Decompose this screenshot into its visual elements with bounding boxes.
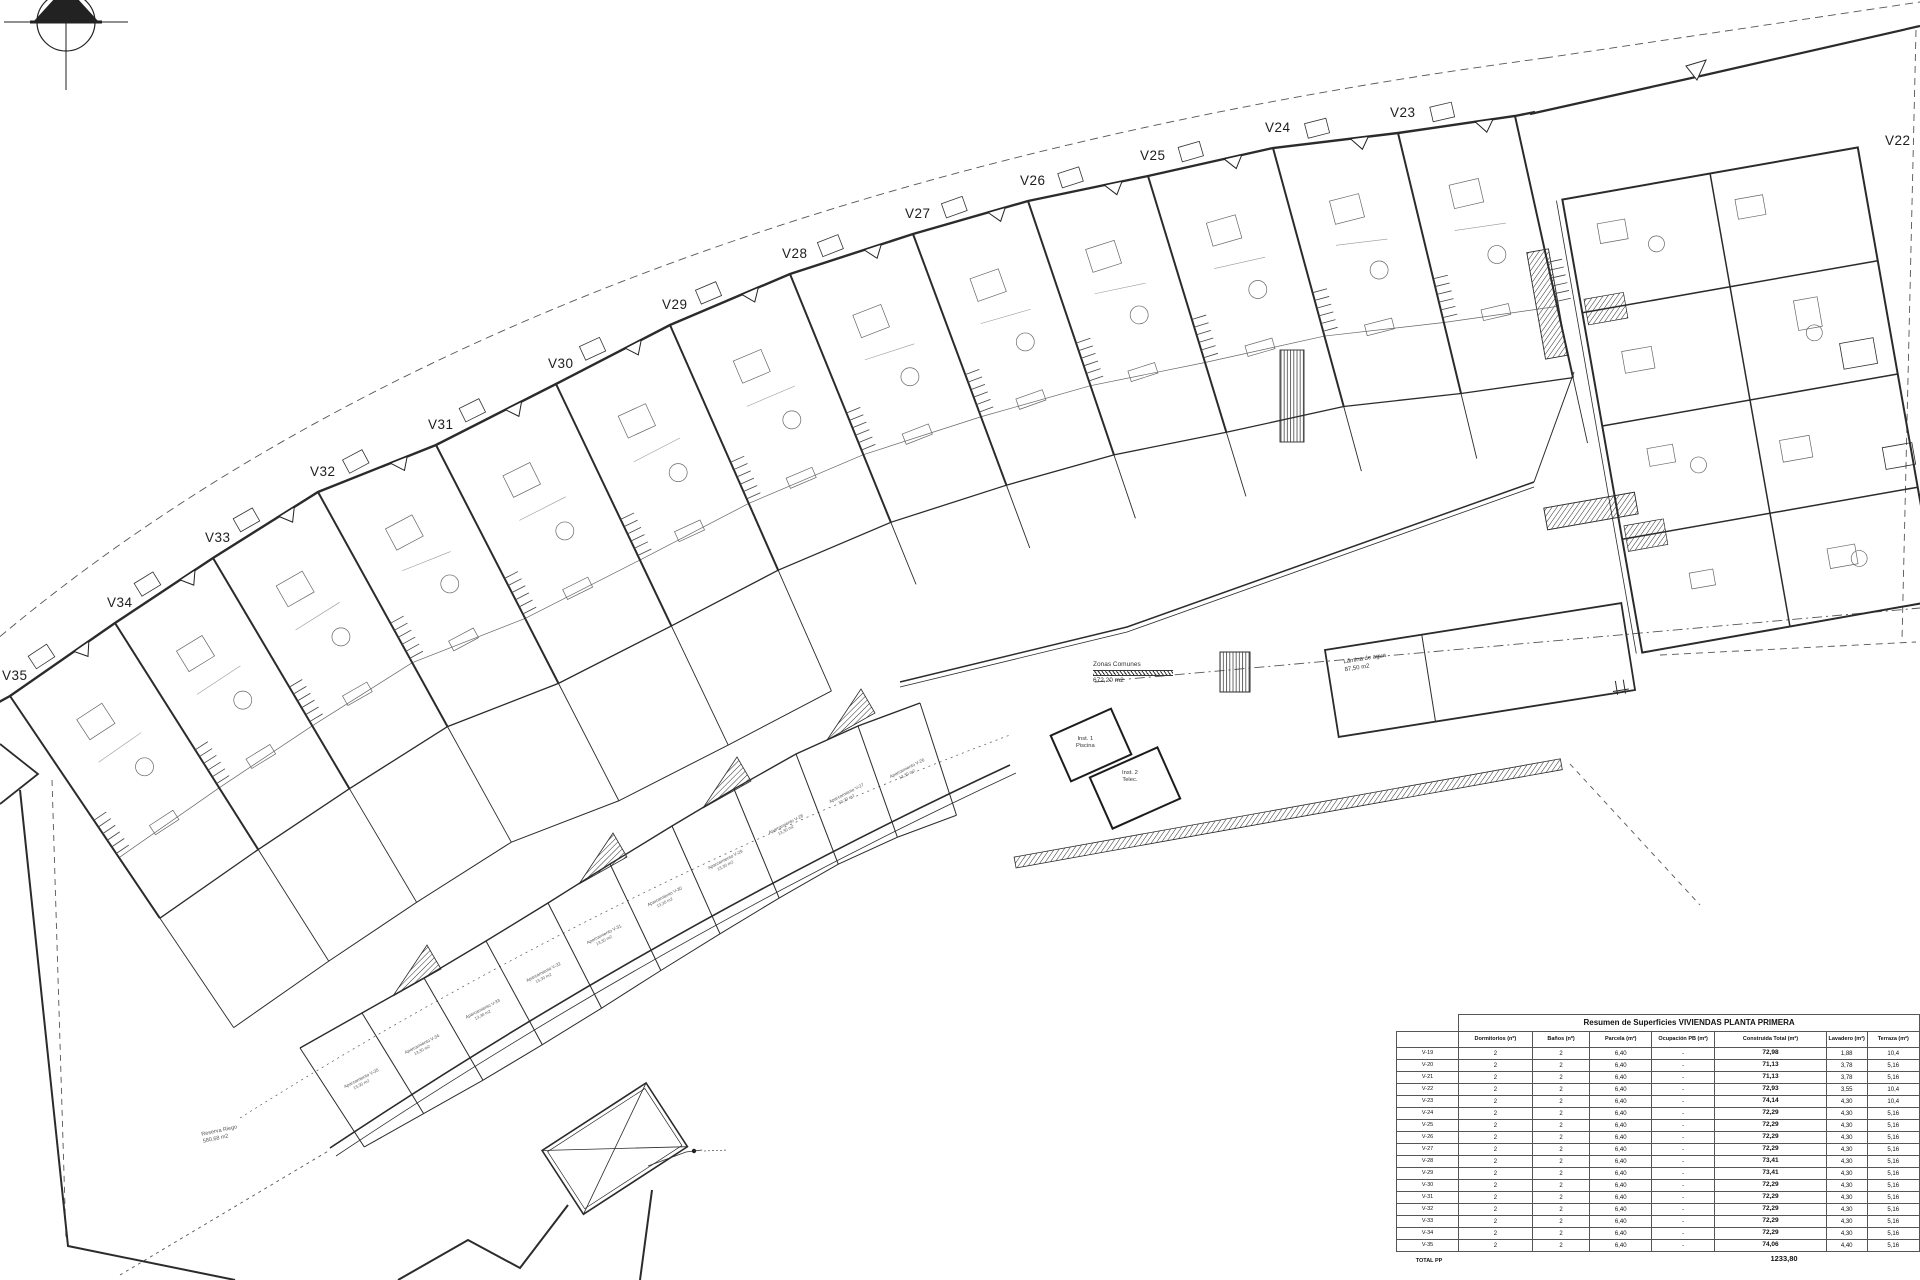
unit-label-v35: V35 — [2, 668, 28, 683]
stair-step — [624, 520, 638, 526]
column-header: Construida Total (m²) — [1715, 1032, 1827, 1048]
table-cell: 6,40 — [1590, 1168, 1652, 1180]
entry-marker-triangle — [279, 507, 294, 522]
entry-porch-box — [1430, 102, 1455, 122]
table-cell: V-19 — [1397, 1048, 1459, 1060]
table-cell: 2 — [1532, 1204, 1590, 1216]
party-wall — [436, 445, 559, 683]
unit-furniture — [1086, 240, 1158, 381]
stair-step — [1192, 315, 1206, 319]
table-cell: 4,30 — [1826, 1156, 1867, 1168]
table-row: V-32226,40-72,294,305,16 — [1397, 1204, 1920, 1216]
table-cell: V-34 — [1397, 1228, 1459, 1240]
table-cell: 2 — [1532, 1216, 1590, 1228]
party-wall — [213, 558, 349, 789]
parking-divider — [672, 826, 720, 934]
entry-porch-box — [134, 572, 161, 596]
table-cell: 2 — [1459, 1204, 1533, 1216]
areas-summary-table: Resumen de Superficies VIVIENDAS PLANTA … — [1396, 1014, 1920, 1252]
table-cell: 4,30 — [1826, 1180, 1867, 1192]
table-cell: 4,30 — [1826, 1192, 1867, 1204]
table-cell: 5,16 — [1867, 1228, 1919, 1240]
inst2-label: Inst. 2 — [1122, 770, 1138, 777]
table-cell: - — [1652, 1228, 1715, 1240]
table-cell: 4,30 — [1826, 1204, 1867, 1216]
unit-band — [0, 102, 1588, 1027]
table-cell: 4,30 — [1826, 1096, 1867, 1108]
table-cell: 2 — [1459, 1192, 1533, 1204]
table-cell: 2 — [1459, 1096, 1533, 1108]
stair-step — [98, 819, 110, 827]
party-wall — [115, 623, 258, 850]
stair-step — [1321, 320, 1335, 324]
unit-label-v27: V27 — [905, 206, 931, 221]
inst2-sublabel: Telec. — [1122, 777, 1138, 784]
entry-marker-triangle — [1350, 137, 1368, 150]
stair-step — [979, 407, 993, 412]
column-header: Dormitorios (nº) — [1459, 1032, 1533, 1048]
table-cell: 2 — [1459, 1108, 1533, 1120]
table-cell: 5,16 — [1867, 1168, 1919, 1180]
table-cell: 5,16 — [1867, 1204, 1919, 1216]
unit-label-v31: V31 — [428, 417, 454, 432]
table-cell: 2 — [1532, 1084, 1590, 1096]
table-title-row: Resumen de Superficies VIVIENDAS PLANTA … — [1397, 1015, 1920, 1032]
table-cell: 2 — [1532, 1180, 1590, 1192]
party-wall — [556, 384, 671, 626]
table-cell: 74,06 — [1715, 1240, 1827, 1252]
unit-label-v26: V26 — [1020, 173, 1046, 188]
stair-step — [298, 693, 311, 701]
communal-walk — [900, 372, 1574, 687]
table-cell: 72,29 — [1715, 1120, 1827, 1132]
entry-porch-box — [941, 196, 967, 217]
table-cell: 6,40 — [1590, 1060, 1652, 1072]
table-cell: 2 — [1459, 1120, 1533, 1132]
table-cell: 2 — [1459, 1060, 1533, 1072]
stair-step — [103, 825, 115, 833]
stair-step — [398, 630, 411, 637]
table-cell: 6,40 — [1590, 1108, 1652, 1120]
table-cell: - — [1652, 1204, 1715, 1216]
table-cell: 6,40 — [1590, 1120, 1652, 1132]
front-wall — [0, 112, 1535, 706]
inst2-annotation: Inst. 2 Telec. — [1122, 770, 1138, 784]
table-cell: V-30 — [1397, 1180, 1459, 1192]
table-cell: 2 — [1532, 1060, 1590, 1072]
stair-step — [621, 513, 635, 519]
table-cell: - — [1652, 1048, 1715, 1060]
parking-divider — [486, 941, 542, 1045]
stair-step — [1435, 283, 1450, 287]
table-cell: 6,40 — [1590, 1096, 1652, 1108]
unit-label-v30: V30 — [548, 356, 574, 371]
entry-porch-box — [579, 337, 605, 360]
stair-step — [731, 456, 745, 462]
unit-furniture — [276, 571, 372, 705]
stair-step — [402, 637, 415, 644]
table-cell: 2 — [1532, 1192, 1590, 1204]
stair-step — [390, 616, 403, 623]
stair-step — [858, 437, 872, 443]
table-cell: V-24 — [1397, 1108, 1459, 1120]
table-cell: 4,40 — [1826, 1240, 1867, 1252]
stair-step — [740, 478, 754, 484]
table-cell: 1,88 — [1826, 1048, 1867, 1060]
table-cell: 2 — [1532, 1132, 1590, 1144]
table-cell: V-20 — [1397, 1060, 1459, 1072]
table-cell: 10,4 — [1867, 1084, 1919, 1096]
stair-step — [634, 542, 648, 548]
party-wall — [1398, 133, 1461, 393]
table-cell: 74,14 — [1715, 1096, 1827, 1108]
table-cell: V-28 — [1397, 1156, 1459, 1168]
table-cell: 72,29 — [1715, 1144, 1827, 1156]
installation-rooms — [1051, 709, 1181, 829]
entry-marker-triangle — [742, 287, 759, 302]
inst1-label: Inst. 1 — [1076, 736, 1095, 743]
party-wall — [913, 234, 1006, 485]
table-cell: 2 — [1459, 1084, 1533, 1096]
unit-label-v22: V22 — [1885, 133, 1911, 148]
table-cell: 2 — [1459, 1132, 1533, 1144]
column-header — [1397, 1032, 1459, 1048]
table-cell: 5,16 — [1867, 1156, 1919, 1168]
table-title: Resumen de Superficies VIVIENDAS PLANTA … — [1459, 1015, 1920, 1032]
transformer-box — [542, 1083, 728, 1214]
stair-step — [1554, 290, 1569, 293]
table-cell: 5,16 — [1867, 1180, 1919, 1192]
stair-step — [107, 832, 119, 840]
entry-porch-box — [695, 282, 721, 304]
unit-label-v29: V29 — [662, 297, 688, 312]
stair-step — [195, 742, 208, 750]
table-cell: V-35 — [1397, 1240, 1459, 1252]
stair-step — [1086, 369, 1100, 374]
table-row: V-29226,40-73,414,305,16 — [1397, 1168, 1920, 1180]
table-cell: 2 — [1459, 1240, 1533, 1252]
zonas-comunes-label: Zonas Comunes — [1093, 661, 1173, 669]
stair-step — [1081, 353, 1095, 358]
stair-step — [94, 812, 106, 820]
table-row: V-19226,40-72,981,8810,4 — [1397, 1048, 1920, 1060]
stair-step — [976, 399, 990, 404]
parking-divider — [610, 864, 661, 971]
stair-step — [512, 586, 525, 593]
stair-step — [861, 444, 875, 450]
stair-step — [1313, 289, 1327, 293]
parking-divider — [796, 754, 838, 864]
table-cell: 5,16 — [1867, 1132, 1919, 1144]
parking-divider — [734, 789, 779, 898]
stair-step — [1437, 291, 1452, 295]
table-cell: 4,30 — [1826, 1120, 1867, 1132]
table-cell: - — [1652, 1240, 1715, 1252]
stair-step — [112, 838, 124, 846]
total-row-label: TOTAL PP — [1396, 1258, 1462, 1264]
table-row: V-26226,40-72,294,305,16 — [1397, 1132, 1920, 1144]
stair-step — [306, 707, 319, 715]
stair-step — [406, 644, 419, 651]
table-cell: 2 — [1459, 1216, 1533, 1228]
table-cell: 72,29 — [1715, 1132, 1827, 1144]
table-cell: - — [1652, 1216, 1715, 1228]
table-cell: 2 — [1459, 1048, 1533, 1060]
table-cell: 6,40 — [1590, 1180, 1652, 1192]
table-cell: 5,16 — [1867, 1120, 1919, 1132]
table-cell: - — [1652, 1060, 1715, 1072]
stair-step — [1197, 330, 1211, 334]
unit-furniture — [77, 703, 179, 835]
stair-step — [302, 700, 315, 708]
table-cell: V-27 — [1397, 1144, 1459, 1156]
right-building-block — [1556, 147, 1920, 653]
unit-furniture — [1329, 194, 1394, 336]
table-cell: 73,41 — [1715, 1168, 1827, 1180]
stair-step — [1089, 376, 1103, 381]
table-cell: 2 — [1459, 1180, 1533, 1192]
table-cell: 6,40 — [1590, 1084, 1652, 1096]
stair-step — [1204, 353, 1218, 357]
party-wall — [10, 696, 160, 918]
floor-plan-sheet: Aparcamiento V-3513,30 m2Aparcamiento V-… — [0, 0, 1920, 1280]
table-cell: 72,29 — [1715, 1108, 1827, 1120]
parking-divider — [548, 903, 602, 1008]
parking-divider — [858, 726, 897, 837]
entry-porch-box — [1305, 118, 1330, 138]
unit-furniture — [618, 404, 704, 542]
stair-step — [852, 422, 866, 428]
table-cell: - — [1652, 1084, 1715, 1096]
unit-label-v34: V34 — [107, 595, 133, 610]
table-cell: 6,40 — [1590, 1228, 1652, 1240]
unit-label-v33: V33 — [205, 530, 231, 545]
stair-step — [1317, 304, 1331, 308]
entry-marker-triangle — [1475, 119, 1493, 132]
parking-divider — [362, 1013, 424, 1114]
table-cell: 3,78 — [1826, 1072, 1867, 1084]
table-row: V-28226,40-73,414,305,16 — [1397, 1156, 1920, 1168]
column-header: Terraza (m²) — [1867, 1032, 1919, 1048]
stair-step — [394, 623, 407, 630]
entry-porch-box — [343, 450, 369, 474]
stair-step — [1201, 346, 1215, 350]
unit-furniture — [853, 304, 932, 444]
entry-porch-box — [1178, 141, 1203, 162]
stair-step — [968, 377, 982, 382]
column-header: Baños (nº) — [1532, 1032, 1590, 1048]
stair-step — [747, 493, 761, 499]
column-header: Parcela (m²) — [1590, 1032, 1652, 1048]
unit-furniture — [1449, 178, 1511, 320]
stair-step — [1076, 338, 1090, 343]
table-cell: 2 — [1532, 1108, 1590, 1120]
entry-porch-box — [459, 399, 485, 422]
table-cell: 72,29 — [1715, 1192, 1827, 1204]
entry-marker-triangle — [625, 340, 641, 355]
stair-step — [1439, 299, 1454, 303]
stair-step — [1084, 361, 1098, 366]
table-row: V-21226,40-71,133,785,16 — [1397, 1072, 1920, 1084]
column-header: Lavadero (m²) — [1826, 1032, 1867, 1048]
unit-label-v24: V24 — [1265, 120, 1291, 135]
table-cell: - — [1652, 1192, 1715, 1204]
table-row: V-34226,40-72,294,305,16 — [1397, 1228, 1920, 1240]
table-cell: 2 — [1532, 1072, 1590, 1084]
party-wall — [790, 274, 891, 522]
column-header: Ocupación PB (m²) — [1652, 1032, 1715, 1048]
table-cell: 5,16 — [1867, 1240, 1919, 1252]
parking-strip: Aparcamiento V-3513,30 m2Aparcamiento V-… — [300, 703, 956, 1147]
table-cell: 4,30 — [1826, 1108, 1867, 1120]
stair-step — [1315, 296, 1329, 300]
stair-step — [505, 572, 518, 579]
stair-step — [737, 471, 751, 477]
table-cell: 5,16 — [1867, 1192, 1919, 1204]
table-row: V-33226,40-72,294,305,16 — [1397, 1216, 1920, 1228]
stair-step — [734, 464, 748, 470]
parking-ramps — [393, 689, 875, 996]
table-cell: V-21 — [1397, 1072, 1459, 1084]
stair-step — [208, 762, 221, 770]
table-cell: 2 — [1532, 1096, 1590, 1108]
table-row: V-24226,40-72,294,305,16 — [1397, 1108, 1920, 1120]
table-cell: 3,78 — [1826, 1060, 1867, 1072]
table-cell: 72,98 — [1715, 1048, 1827, 1060]
table-row: V-22226,40-72,933,5510,4 — [1397, 1084, 1920, 1096]
table-cell: 5,16 — [1867, 1216, 1919, 1228]
entry-marker-triangle — [506, 401, 522, 416]
total-construida-value: 1233,80 — [1726, 1254, 1842, 1263]
table-cell: 10,4 — [1867, 1048, 1919, 1060]
table-cell: 2 — [1459, 1168, 1533, 1180]
unit-furniture — [970, 269, 1046, 410]
table-cell: 6,40 — [1590, 1204, 1652, 1216]
table-cell: - — [1652, 1108, 1715, 1120]
table-row: V-25226,40-72,294,305,16 — [1397, 1120, 1920, 1132]
table-cell: 4,30 — [1826, 1132, 1867, 1144]
stair-step — [204, 755, 217, 763]
stair-step — [743, 485, 757, 491]
stair-step — [289, 679, 302, 687]
table-cell: 72,29 — [1715, 1228, 1827, 1240]
unit-furniture — [176, 635, 275, 768]
table-cell: V-31 — [1397, 1192, 1459, 1204]
stair-step — [508, 579, 521, 586]
zonas-comunes-annotation: Zonas Comunes 672,20 m2 — [1093, 661, 1173, 685]
table-cell: 5,16 — [1867, 1072, 1919, 1084]
stair-step — [1079, 346, 1093, 351]
table-row: V-31226,40-72,294,305,16 — [1397, 1192, 1920, 1204]
table-cell: 72,29 — [1715, 1180, 1827, 1192]
table-cell: 2 — [1532, 1228, 1590, 1240]
zonas-comunes-hatch — [1093, 670, 1173, 676]
table-cell: 2 — [1532, 1240, 1590, 1252]
pool — [1325, 603, 1635, 739]
table-row: V-30226,40-72,294,305,16 — [1397, 1180, 1920, 1192]
unit-furniture — [733, 349, 816, 488]
table-cell: - — [1652, 1180, 1715, 1192]
table-cell: 10,4 — [1867, 1096, 1919, 1108]
table-cell: 6,40 — [1590, 1048, 1652, 1060]
parking-divider — [424, 978, 483, 1080]
table-cell: 2 — [1459, 1156, 1533, 1168]
table-cell: 5,16 — [1867, 1144, 1919, 1156]
inst1-annotation: Inst. 1 Piscina — [1076, 736, 1095, 750]
table-cell: - — [1652, 1120, 1715, 1132]
stair-step — [855, 430, 869, 436]
table-cell: 2 — [1532, 1048, 1590, 1060]
stair-step — [410, 651, 423, 658]
table-cell: V-22 — [1397, 1084, 1459, 1096]
table-cell: 2 — [1532, 1120, 1590, 1132]
table-cell: 6,40 — [1590, 1216, 1652, 1228]
stair-step — [1441, 306, 1456, 310]
table-cell: - — [1652, 1096, 1715, 1108]
entry-porch-box — [233, 508, 260, 532]
stair-step — [516, 593, 529, 600]
table-cell: 6,40 — [1590, 1156, 1652, 1168]
table-cell: V-33 — [1397, 1216, 1459, 1228]
table-cell: 72,93 — [1715, 1084, 1827, 1096]
unit-furniture — [503, 463, 593, 600]
inst1-sublabel: Piscina — [1076, 743, 1095, 750]
table-cell: 6,40 — [1590, 1132, 1652, 1144]
unit-label-v28: V28 — [782, 246, 808, 261]
table-cell: 2 — [1532, 1144, 1590, 1156]
parking-divider — [300, 1048, 364, 1147]
table-cell: 71,13 — [1715, 1072, 1827, 1084]
stair-step — [519, 600, 532, 607]
table-header-row: Dormitorios (nº)Baños (nº)Parcela (m²)Oc… — [1397, 1032, 1920, 1048]
entry-marker-triangle — [1224, 155, 1242, 168]
entry-porch-box — [28, 644, 55, 669]
stair-step — [627, 527, 641, 533]
table-cell: 3,55 — [1826, 1084, 1867, 1096]
table-cell: V-26 — [1397, 1132, 1459, 1144]
party-wall — [1028, 201, 1114, 455]
table-cell: 2 — [1459, 1228, 1533, 1240]
stair-step — [1199, 338, 1213, 342]
table-cell: V-23 — [1397, 1096, 1459, 1108]
stair-step — [1323, 327, 1337, 331]
stair-step — [1433, 275, 1448, 279]
table-cell: - — [1652, 1132, 1715, 1144]
table-cell: 2 — [1532, 1168, 1590, 1180]
stair-step — [199, 749, 212, 757]
table-cell: 4,30 — [1826, 1144, 1867, 1156]
entry-marker-triangle — [988, 208, 1005, 222]
table-row: V-27226,40-72,294,305,16 — [1397, 1144, 1920, 1156]
table-cell: 71,13 — [1715, 1060, 1827, 1072]
table-row: V-23226,40-74,144,3010,4 — [1397, 1096, 1920, 1108]
stair-step — [212, 769, 225, 777]
table-cell: - — [1652, 1072, 1715, 1084]
table-cell: 4,30 — [1826, 1168, 1867, 1180]
table-cell: 2 — [1459, 1072, 1533, 1084]
pergola-hatch — [1220, 652, 1250, 692]
entry-porch-box — [1058, 167, 1084, 188]
table-cell: 2 — [1459, 1144, 1533, 1156]
stair-step — [974, 392, 988, 397]
stair-step — [1443, 314, 1458, 318]
unit-furniture — [1206, 215, 1275, 357]
stair-step — [631, 535, 645, 541]
table-cell: 6,40 — [1590, 1240, 1652, 1252]
table-cell: V-32 — [1397, 1204, 1459, 1216]
stair-step — [1319, 312, 1333, 316]
table-cell: 5,16 — [1867, 1108, 1919, 1120]
